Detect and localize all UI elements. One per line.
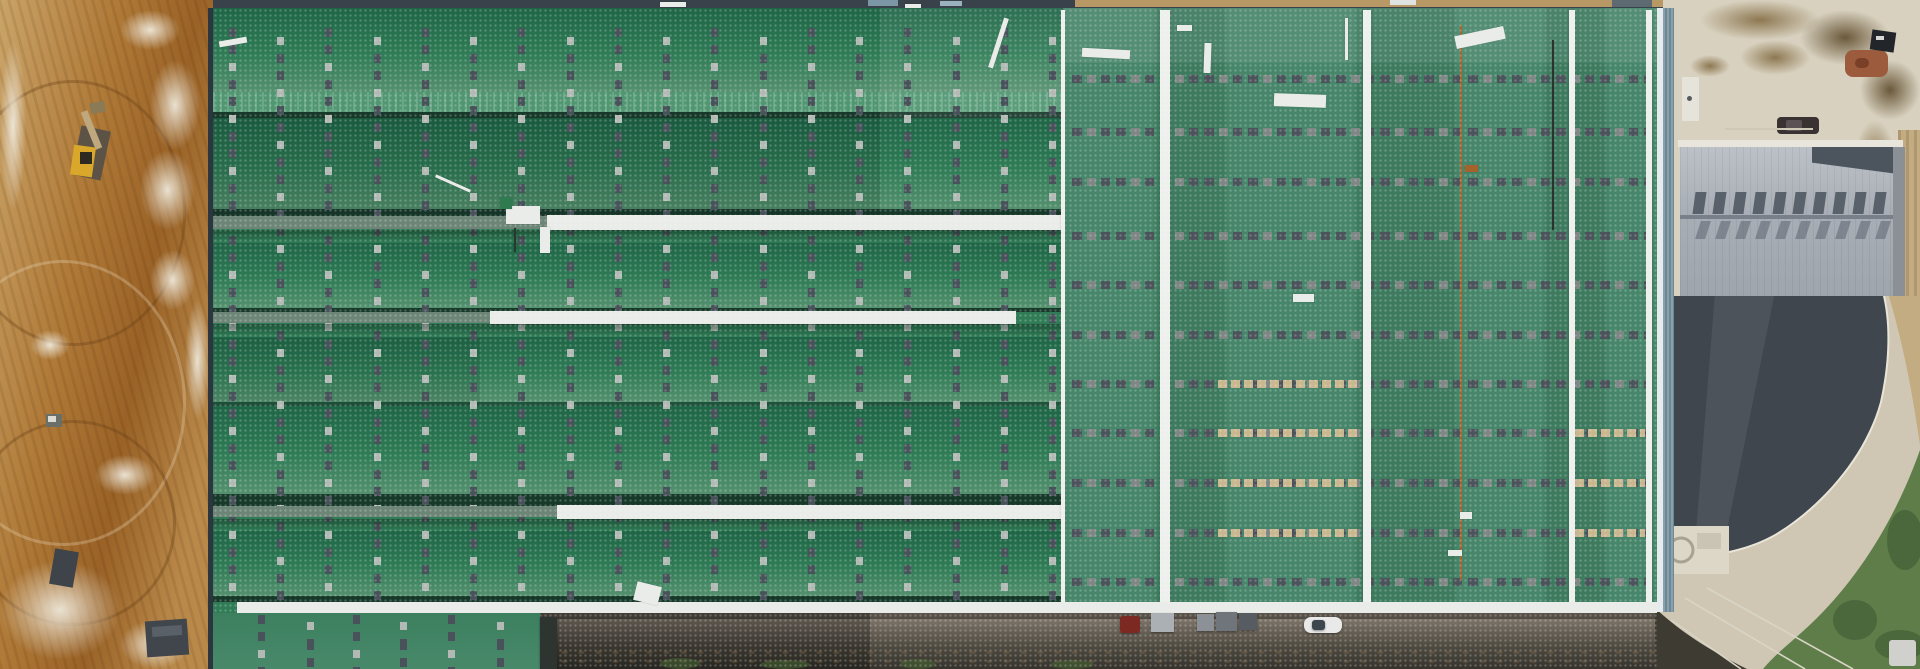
gray-building-parapet <box>1678 140 1903 147</box>
ground-visible-above-eave <box>1075 0 1663 7</box>
roof-sheet-texture <box>213 8 1657 669</box>
roof-lower-extension <box>213 613 540 669</box>
platform-step <box>1697 533 1721 549</box>
dirt-track-streaks <box>0 0 216 669</box>
bush <box>1833 600 1877 640</box>
white-truck <box>1889 640 1916 666</box>
roof-bottom-edge-strip <box>237 602 1657 613</box>
gray-building-side-wall <box>1893 147 1905 296</box>
bottom-right-area <box>1655 290 1920 669</box>
gray-roof-ridge <box>1680 215 1900 219</box>
warehouse-right-edge-corrugated <box>1663 8 1674 612</box>
aerial-photo-scene <box>0 0 1920 669</box>
